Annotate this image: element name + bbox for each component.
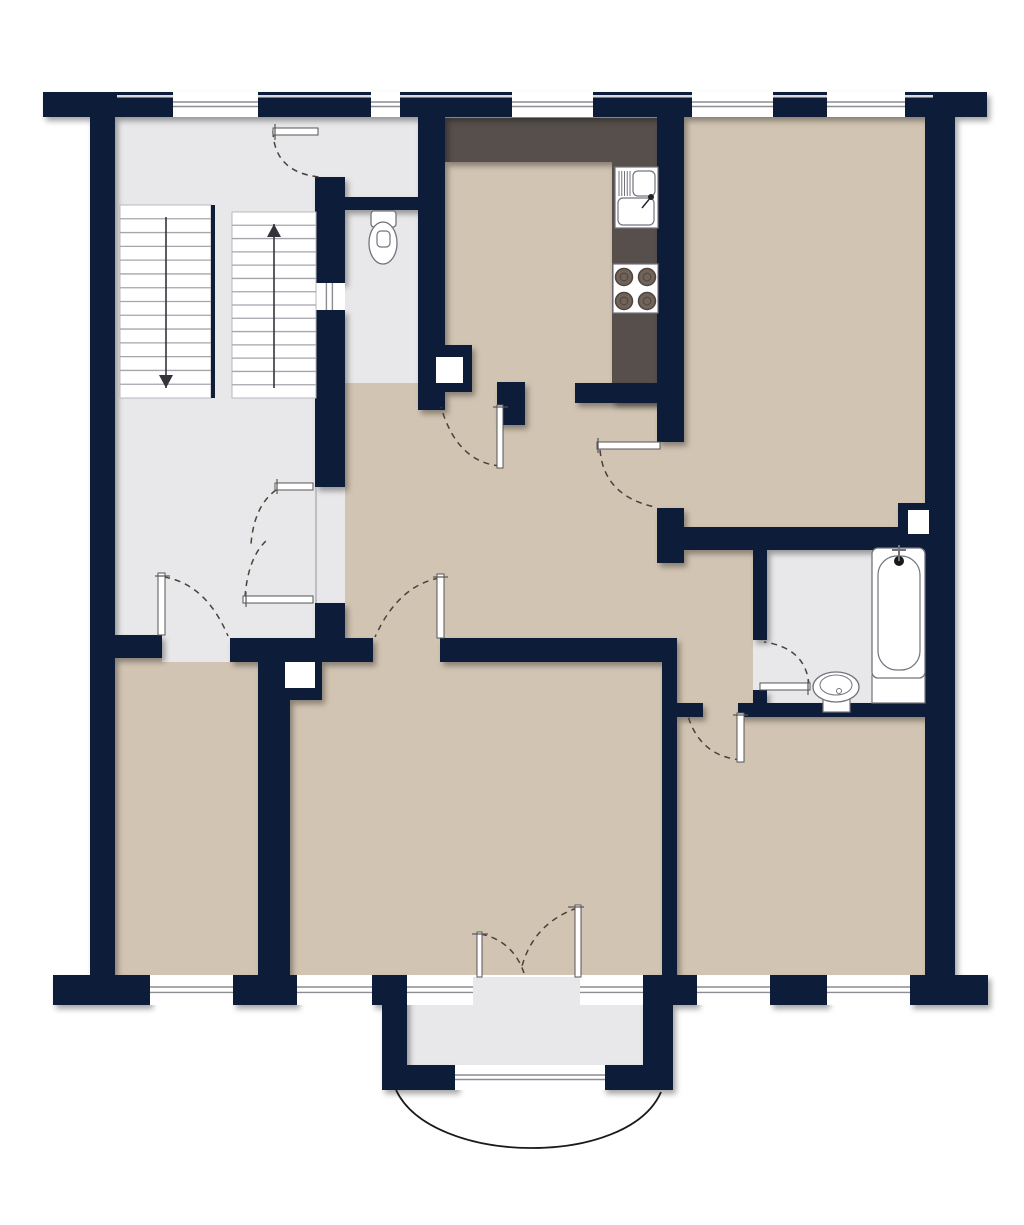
window-topright-1-opening	[692, 92, 773, 117]
stair-flight-up	[232, 212, 316, 398]
stove-burner-1	[639, 269, 656, 286]
window-bottomright-2	[827, 975, 910, 1005]
exterior-wall-left	[90, 117, 115, 1005]
hall-bottomrooms-wall-1	[102, 635, 162, 658]
window-living-3	[580, 975, 643, 1005]
window-bottomright-1-opening	[697, 975, 770, 1005]
window-stairwell-interior	[315, 283, 345, 310]
window-wc-top	[371, 92, 400, 117]
exterior-wall-bottom-5	[770, 975, 827, 1005]
stairwell-wall-seg2	[315, 310, 345, 487]
window-bottomleft	[150, 975, 233, 1005]
floor-plan-page	[0, 0, 1024, 1225]
sink-bowl-large	[618, 198, 654, 225]
facade-line-3	[593, 95, 692, 98]
facade-line-4	[773, 95, 827, 98]
bottom-left-door-opening-floor	[162, 635, 230, 662]
window-living-2	[407, 975, 473, 1005]
window-living-3-opening	[580, 975, 643, 1005]
living-room-door-opening-floor	[373, 638, 440, 664]
stove-icon	[613, 264, 658, 313]
exterior-wall-bottom-4	[673, 975, 697, 1005]
stairwell-door-opening-floor	[315, 117, 345, 177]
topright-room-bottom-wall	[673, 527, 900, 550]
window-bottomright-2-opening	[827, 975, 910, 1005]
bathtub-apron	[872, 675, 925, 703]
window-topright-1	[692, 92, 773, 117]
window-topright-2-opening	[827, 92, 905, 117]
bathroom-left-wall-upper	[753, 550, 767, 640]
facade-line-2	[400, 95, 512, 98]
window-balcony-opening	[455, 1065, 605, 1090]
window-topright-2	[827, 92, 905, 117]
living-bottomright-divider	[662, 640, 677, 975]
balcony-floor	[407, 1005, 643, 1067]
hall-bottomrooms-wall-3	[440, 638, 677, 662]
stove-burner-3	[639, 293, 656, 310]
window-stairwell-top	[173, 92, 258, 117]
bottom-left-room-floor	[115, 658, 258, 975]
stove-burner-0	[616, 269, 633, 286]
bathroom-bottom-stub	[677, 703, 703, 717]
stove-burner-2	[616, 293, 633, 310]
stairwell-wall-seg1	[315, 177, 345, 283]
living-room-door-leaf	[437, 574, 444, 638]
bottom-left-room-door-leaf	[158, 573, 165, 635]
bathtub-inner	[878, 556, 920, 670]
living-room-floor	[290, 662, 662, 975]
bathtub-icon	[872, 545, 925, 703]
window-kitchen-top	[512, 92, 593, 117]
wc-divider-wall	[340, 197, 423, 210]
bottom-right-room-door-leaf	[737, 713, 744, 762]
toilet-bowl	[369, 222, 397, 264]
balcony-wall-bottom-l	[382, 1065, 457, 1090]
toilet-icon	[369, 211, 397, 264]
window-living-1	[297, 975, 372, 1005]
facade-line-5	[905, 95, 933, 98]
balcony-door-right-leaf	[575, 905, 581, 977]
bottomleft-living-divider	[258, 662, 290, 975]
exterior-wall-bottom-2	[233, 975, 297, 1005]
balcony-wall-bottom-r	[603, 1065, 668, 1090]
window-kitchen-top-opening	[512, 92, 593, 117]
floor-plan-canvas	[0, 0, 1024, 1225]
top-right-room-door-leaf	[597, 442, 660, 449]
entrance-opening-floor	[315, 487, 345, 603]
window-stairwell-top-opening	[173, 92, 258, 117]
exterior-wall-bottom-1	[53, 975, 150, 1005]
window-living-2-opening	[407, 975, 473, 1005]
stairwell-door-leaf	[273, 128, 318, 135]
exterior-wall-bottom-3	[372, 975, 407, 1005]
sink-bowl-small	[633, 171, 655, 196]
window-bottomright-1	[697, 975, 770, 1005]
niche-kitchen	[436, 357, 463, 383]
facade-line-0	[117, 95, 173, 98]
niche-living	[285, 662, 315, 688]
stair-flight-down	[120, 205, 211, 398]
bottom-right-room-floor	[677, 715, 925, 975]
balcony-threshold-floor	[473, 977, 580, 1005]
kitchen-bottom-wall	[575, 383, 660, 403]
bottom-right-door-opening-floor	[703, 703, 738, 717]
window-wc-top-opening	[371, 92, 400, 117]
stair-divider	[211, 205, 215, 398]
entrance-door-leaf-a-leaf	[275, 483, 313, 490]
facade-line-1	[258, 95, 371, 98]
window-living-1-opening	[297, 975, 372, 1005]
exterior-wall-bottom-6	[910, 975, 988, 1005]
top-right-room-floor	[684, 117, 925, 527]
kitchen-door-leaf	[497, 405, 503, 468]
bath-corridor-floor	[677, 550, 753, 705]
window-bottomleft-opening	[150, 975, 233, 1005]
kitchen-counter-top	[445, 118, 660, 162]
entrance-door-leaf-b-leaf	[243, 596, 313, 603]
window-balcony	[455, 1065, 605, 1090]
niche-bathroom	[908, 510, 929, 534]
bathroom-door-leaf	[760, 683, 810, 690]
kitchen-sink-icon	[615, 167, 658, 228]
window-stairwell-interior-opening	[315, 283, 345, 310]
kitchen-topright-wall	[657, 117, 684, 442]
balcony-door-left-leaf	[477, 932, 482, 977]
